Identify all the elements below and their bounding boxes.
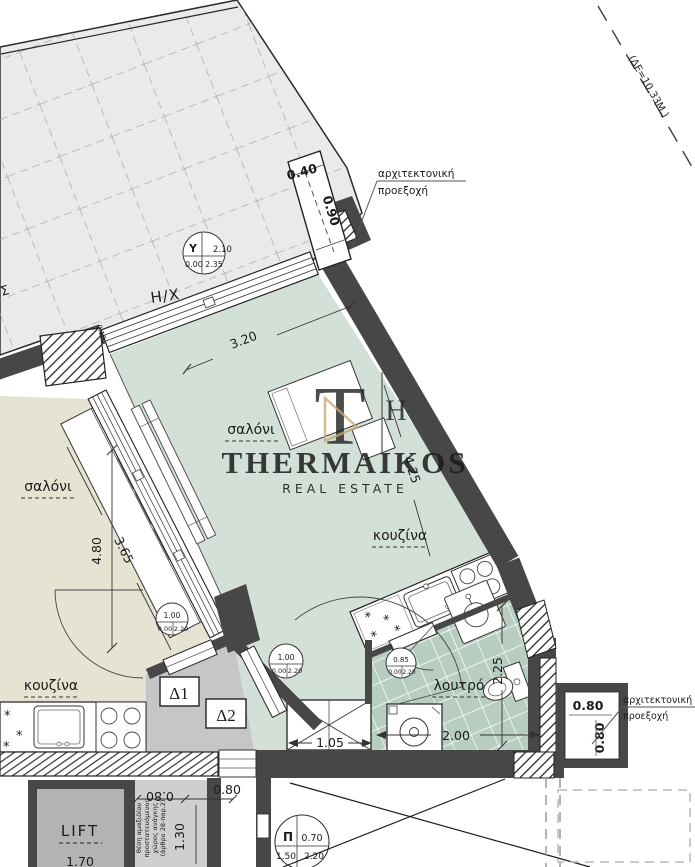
dim-closet: 1.05	[316, 735, 344, 750]
door-symbol-studio: 1.00 0.00 2.20	[269, 644, 303, 678]
shaft-note-line: προστατευόμενος	[143, 799, 151, 858]
watermark-brand: THERMAIKOS	[221, 445, 468, 480]
dim-left-depth: 4.80	[89, 537, 104, 565]
shaft-note-line: χώρος ανάγκης	[151, 802, 159, 853]
dim-right-projection-width: 0.80	[573, 698, 604, 713]
svg-text:0.00: 0.00	[272, 667, 286, 675]
kitchen-counter-left: * * *	[0, 702, 146, 755]
svg-text:2.10: 2.10	[213, 245, 232, 255]
svg-text:Δ1: Δ1	[169, 684, 188, 703]
door-tag-d1: Δ1	[160, 677, 199, 706]
annotation-projection: αρχιτεκτονική	[378, 168, 454, 180]
svg-text:0.00: 0.00	[185, 260, 203, 269]
door-symbol-bath: 0.85 0.00 2.20	[386, 648, 416, 678]
shaft-note-line: θέση αμαξιδίου	[135, 803, 143, 853]
column-hatched	[514, 752, 554, 778]
corridor-door-frame	[219, 750, 256, 777]
label-studio-living: σαλόνι	[227, 422, 275, 438]
svg-text:Π: Π	[283, 830, 293, 844]
cooktop-left	[96, 702, 146, 752]
svg-text:Υ: Υ	[188, 243, 197, 255]
boundary-label: (ΔΕ=10.33Μ.)	[626, 54, 670, 120]
shaft-note-line: (άρθρο 28-παρ.2)	[159, 800, 167, 857]
svg-text:0.00: 0.00	[388, 669, 402, 676]
watermark-monogram-h: H	[385, 394, 407, 427]
core: LIFT 1.70 θέση αμαξιδίου προστατευόμενος…	[28, 780, 241, 867]
column-hatched	[540, 658, 556, 752]
dim-shaft-w1: 0.80	[146, 789, 174, 804]
annotation-projection-right: προεξοχή	[623, 711, 668, 722]
svg-text:2.20: 2.20	[402, 669, 416, 676]
label-left-living: σαλόνι	[24, 479, 72, 495]
kitchen-sink-left	[34, 706, 84, 748]
label-lift: LIFT	[61, 822, 99, 840]
site-boundary: (ΔΕ=10.33Μ.)	[598, 6, 695, 172]
drainer-star-icon: *	[4, 709, 11, 724]
dim-lift-width: 1.70	[66, 854, 94, 867]
right-projection: 0.80 0.80 αρχιτεκτονική προεξοχή	[556, 683, 695, 768]
dashed-outline	[558, 790, 690, 862]
dim-shaft-w2: 0.80	[213, 782, 241, 797]
floor-plan-drawing: (ΔΕ=10.33Μ.) Σ * * * *	[0, 0, 695, 867]
floor-plan-sheet: (ΔΕ=10.33Μ.) Σ * * * *	[0, 0, 695, 867]
watermark-tagline: REAL ESTATE	[282, 481, 408, 496]
dim-shaft-h: 1.30	[172, 823, 187, 851]
column-hatched	[40, 328, 106, 386]
svg-text:2.35: 2.35	[205, 260, 223, 269]
svg-text:2.20: 2.20	[174, 625, 188, 633]
annotation-projection: προεξοχή	[378, 185, 428, 197]
svg-text:1.00: 1.00	[278, 653, 295, 662]
svg-text:1.50: 1.50	[276, 852, 296, 862]
wall-section-hatch	[0, 752, 218, 776]
drainer-star-icon: *	[16, 729, 23, 744]
void-cross	[283, 779, 590, 867]
label-studio-kitchen: κουζίνα	[373, 528, 427, 544]
label-left-kitchen: κουζίνα	[24, 678, 78, 694]
dim-bath-width: 2.00	[442, 728, 470, 743]
svg-text:0.85: 0.85	[393, 656, 409, 664]
svg-text:Δ2: Δ2	[216, 706, 235, 725]
door-tag-d2: Δ2	[206, 699, 246, 728]
dim-bath-depth: 2.25	[490, 657, 505, 685]
svg-text:1.00: 1.00	[164, 611, 181, 620]
svg-text:2.20: 2.20	[288, 667, 302, 675]
dim-right-projection-depth: 0.80	[592, 722, 607, 753]
label-bath: λουτρό	[434, 678, 485, 694]
svg-text:0.70: 0.70	[301, 833, 322, 844]
annotation-projection-right: αρχιτεκτονική	[623, 695, 692, 706]
